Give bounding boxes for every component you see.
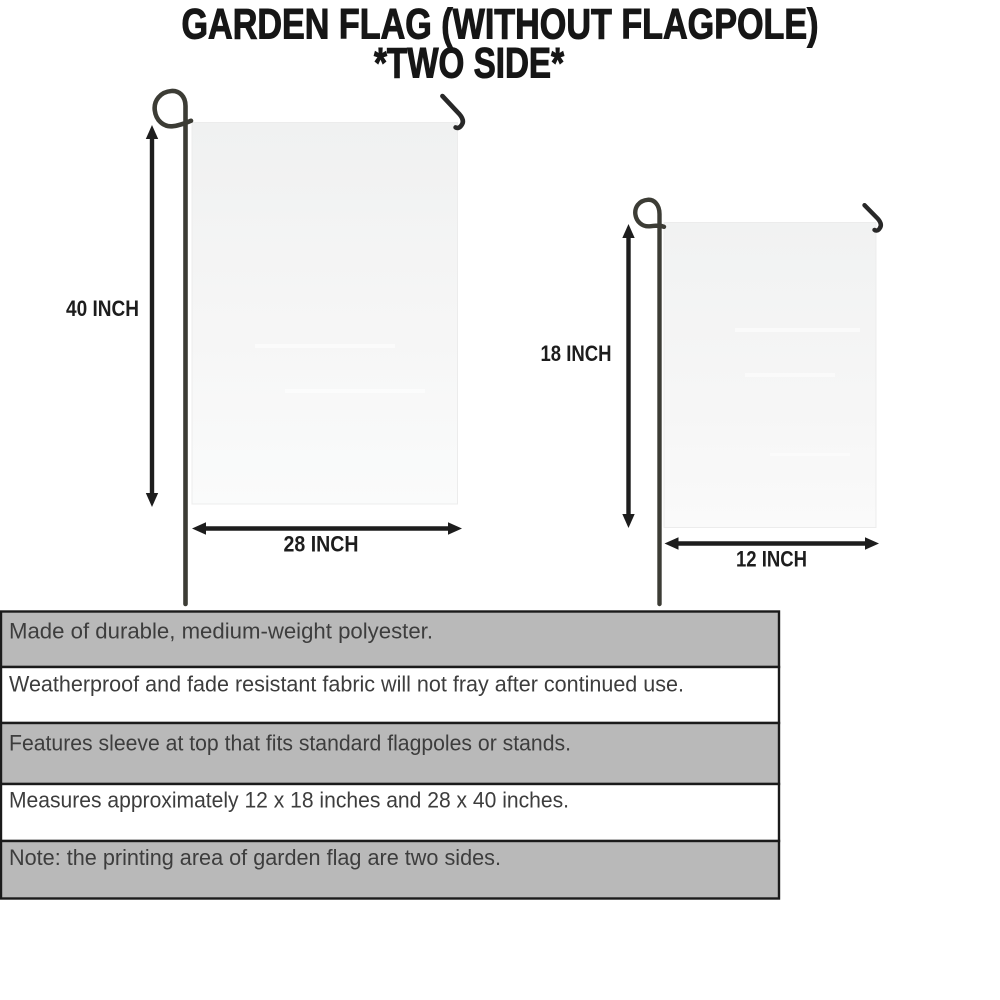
svg-text:12 INCH: 12 INCH xyxy=(736,547,807,572)
svg-text:Features sleeve at top that fi: Features sleeve at top that fits standar… xyxy=(9,731,571,756)
svg-text:*TWO SIDE*: *TWO SIDE* xyxy=(374,40,564,88)
svg-text:Weatherproof and fade resistan: Weatherproof and fade resistant fabric w… xyxy=(9,672,684,697)
svg-text:Made of durable, medium-weight: Made of durable, medium-weight polyester… xyxy=(9,619,433,644)
svg-text:18 INCH: 18 INCH xyxy=(541,341,612,366)
svg-text:Measures approximately 12 x 18: Measures approximately 12 x 18 inches an… xyxy=(9,788,569,813)
svg-text:Note: the printing area of gar: Note: the printing area of garden flag a… xyxy=(9,845,501,870)
svg-text:28 INCH: 28 INCH xyxy=(284,532,359,557)
svg-text:40 INCH: 40 INCH xyxy=(66,296,139,321)
